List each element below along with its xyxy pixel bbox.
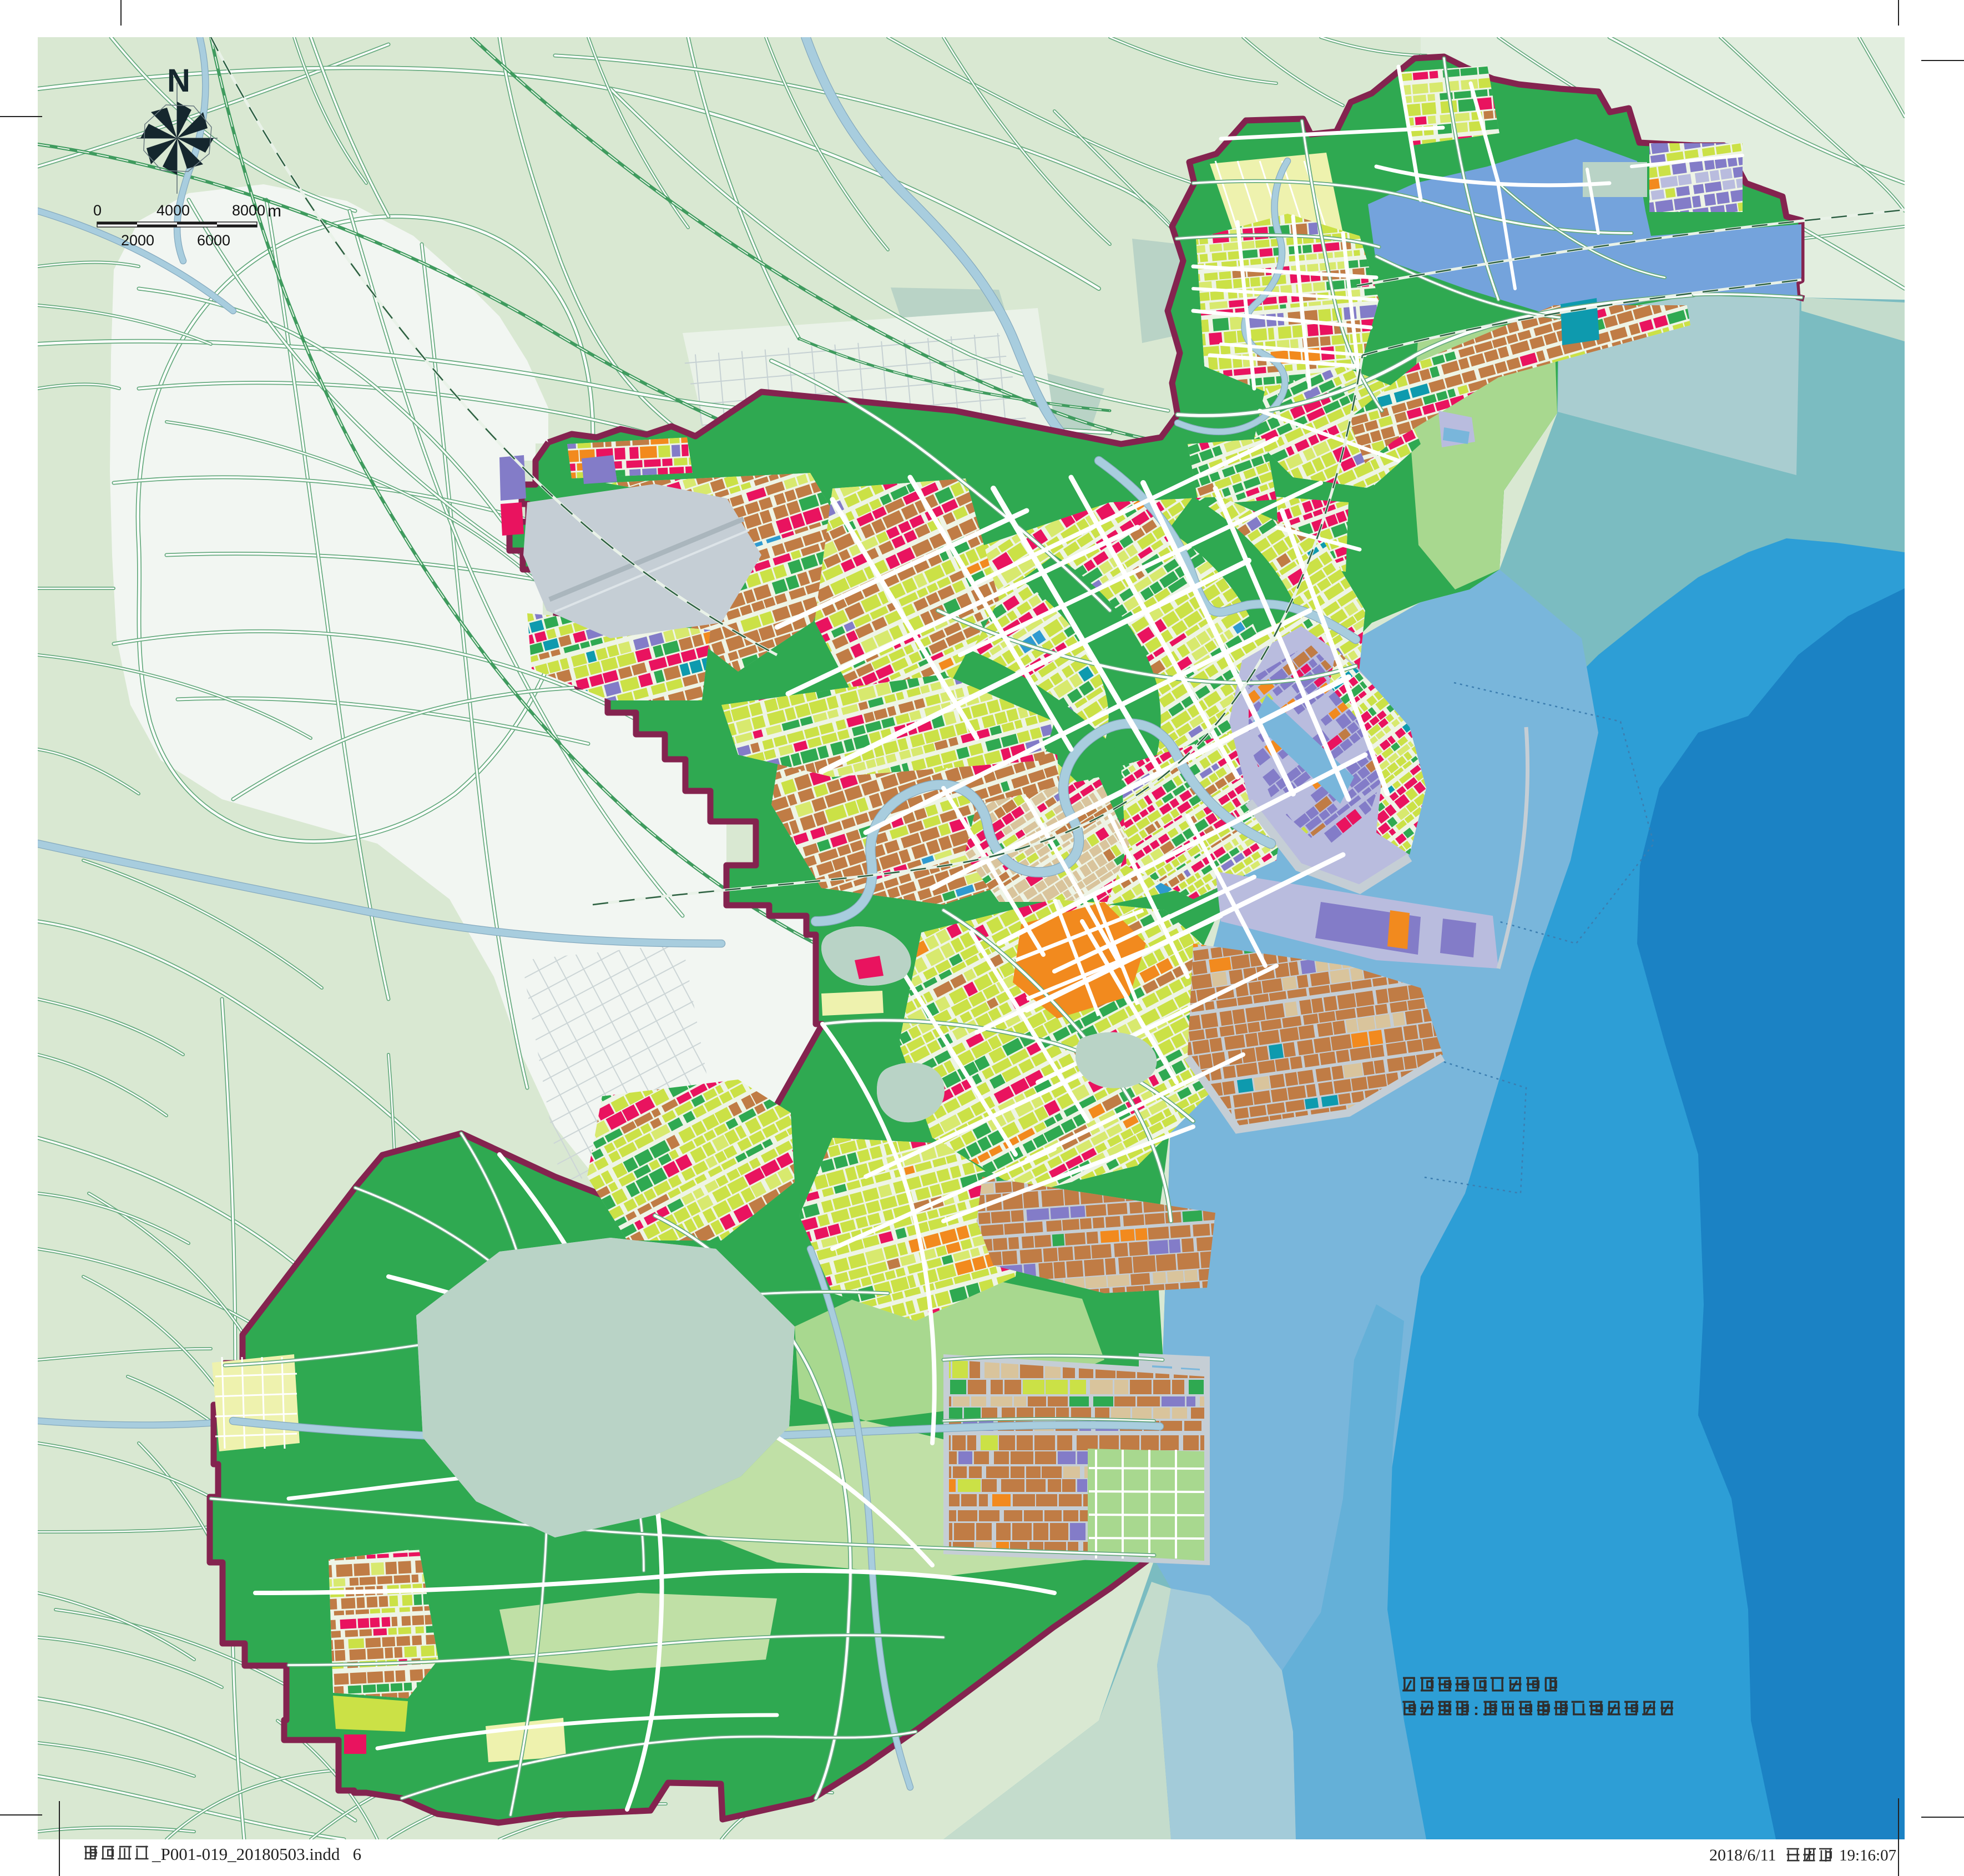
svg-text:8000: 8000 — [232, 202, 265, 219]
svg-text:N: N — [167, 63, 190, 99]
svg-text:6000: 6000 — [197, 232, 230, 249]
svg-text:19:16:07: 19:16:07 — [1839, 1847, 1896, 1864]
svg-text:2000: 2000 — [121, 232, 154, 249]
svg-text:_P001-019_20180503.indd 6: _P001-019_20180503.indd 6 — [152, 1844, 361, 1864]
svg-text:0: 0 — [93, 202, 102, 219]
svg-text:2018/6/11: 2018/6/11 — [1709, 1846, 1776, 1864]
svg-text:4000: 4000 — [156, 202, 190, 219]
svg-text:m: m — [267, 202, 281, 220]
svg-text::: : — [1473, 1701, 1479, 1719]
